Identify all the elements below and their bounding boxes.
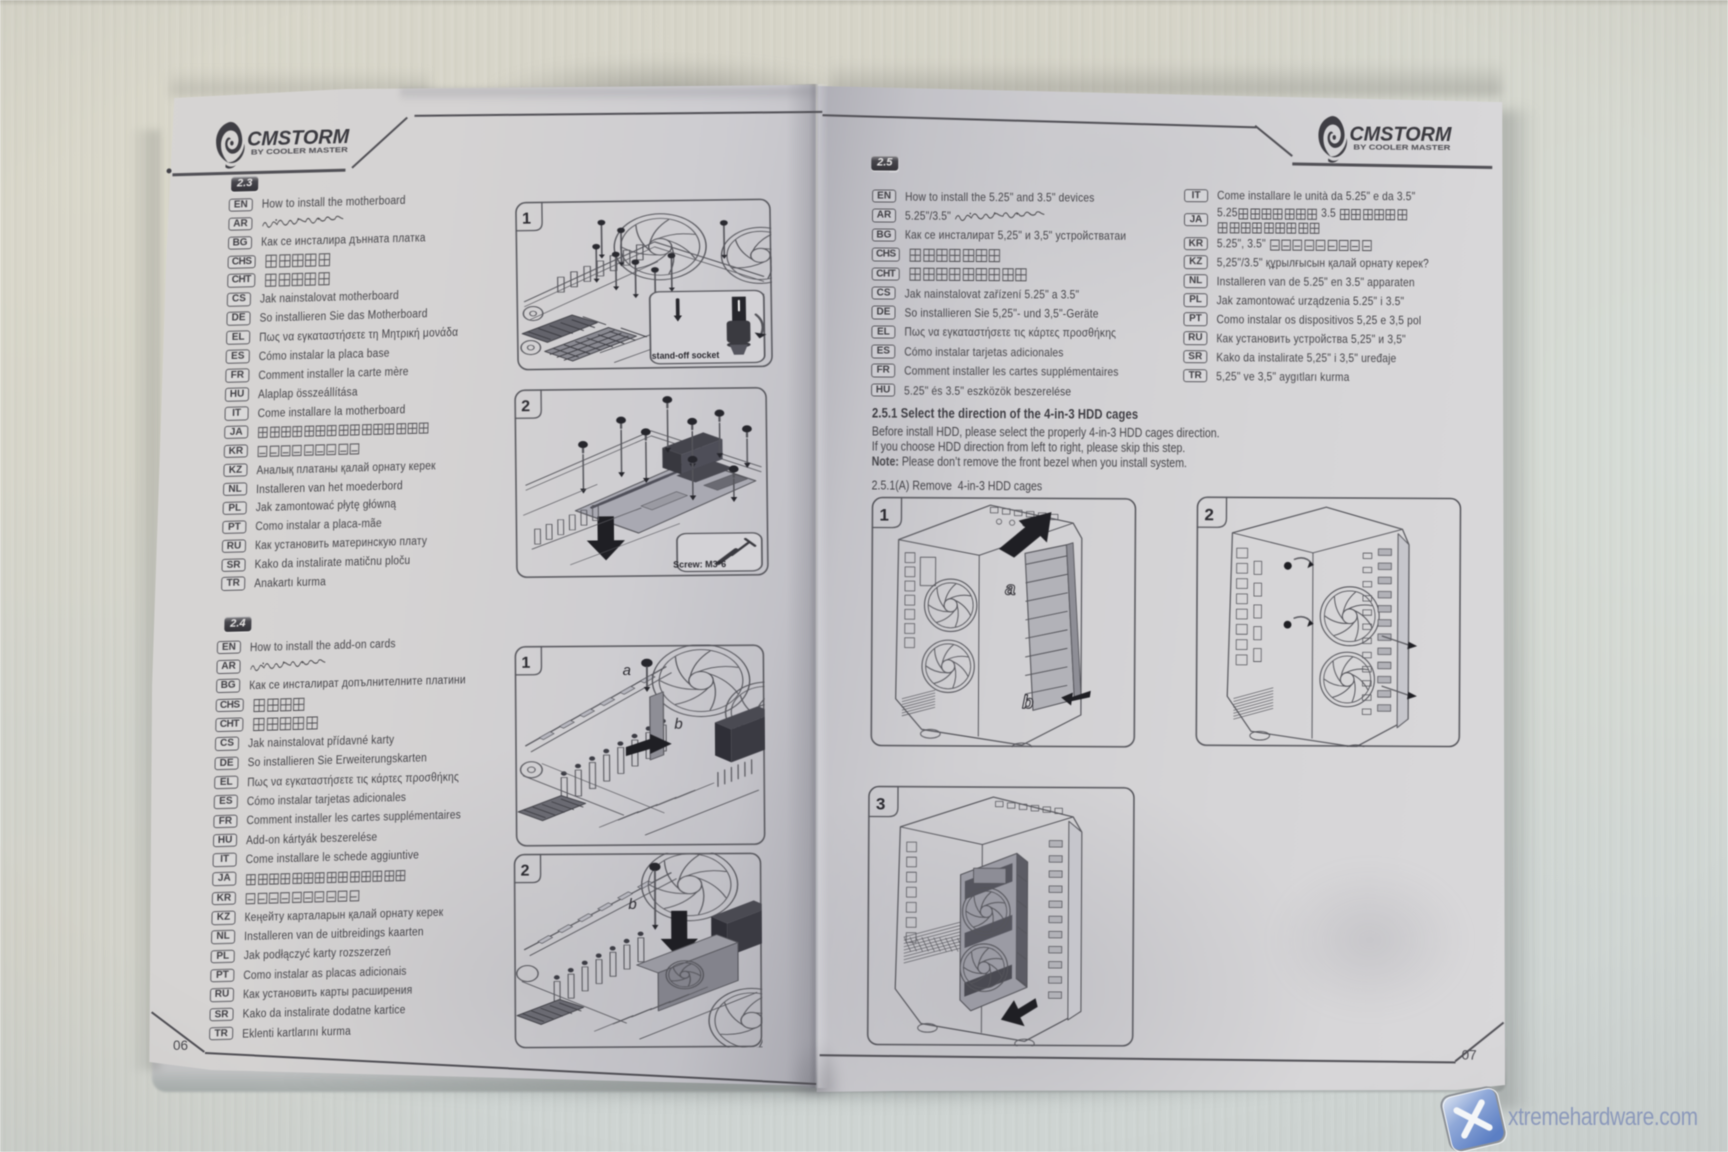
svg-text:3: 3 — [876, 795, 886, 814]
svg-text:BY COOLER MASTER: BY COOLER MASTER — [1353, 143, 1451, 153]
svg-text:a: a — [1005, 578, 1015, 599]
svg-text:b: b — [1022, 691, 1033, 712]
svg-text:1: 1 — [879, 506, 889, 525]
svg-text:2: 2 — [1204, 505, 1214, 524]
